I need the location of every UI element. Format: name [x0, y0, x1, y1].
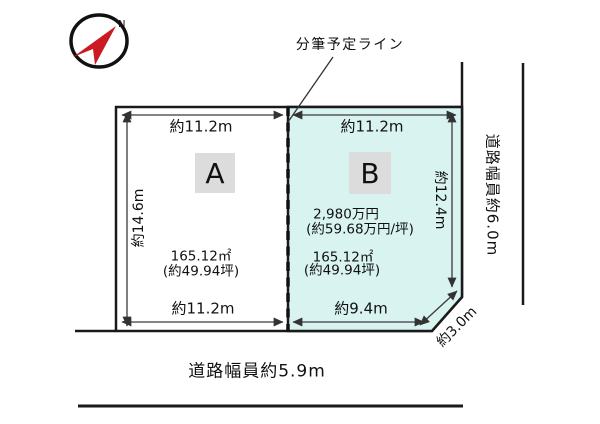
- bottom-road-width-label: 道路幅員約5.9m: [188, 364, 326, 381]
- plot-a-area-tsubo: (約49.94坪): [163, 265, 239, 279]
- plot-b-bottom-dimension: 約9.4m: [334, 302, 387, 317]
- plot-a-bottom-dimension: 約11.2m: [171, 302, 234, 317]
- plot-b-right-dimension: 約12.4m: [433, 171, 447, 230]
- plot-b-top-dimension: 約11.2m: [340, 120, 403, 135]
- compass-north-icon: N: [71, 15, 127, 67]
- plot-a-label: A: [195, 153, 235, 193]
- plot-b-area-tsubo: (約49.94坪): [304, 264, 380, 278]
- plot-a-top-dimension: 約11.2m: [169, 120, 232, 135]
- plot-a-area-sqm: 165.12㎡: [171, 250, 232, 264]
- subdivision-line-label: 分筆予定ライン: [296, 38, 405, 52]
- plot-b-price: 2,980万円: [313, 208, 379, 222]
- land-plot-diagram: N 分筆予定ライン 約11.2m 約14.6m A 165.12㎡ (約49.9…: [0, 0, 600, 424]
- compass-north-label: N: [118, 19, 125, 30]
- plot-a-left-dimension: 約14.6m: [132, 189, 146, 248]
- diagram-shapes: N: [0, 0, 600, 424]
- plot-b-label: B: [349, 152, 391, 194]
- right-road-width-label: 道路幅員約6.0m: [485, 134, 500, 256]
- plot-b-price-per-tsubo: (約59.68万円/坪): [306, 223, 414, 237]
